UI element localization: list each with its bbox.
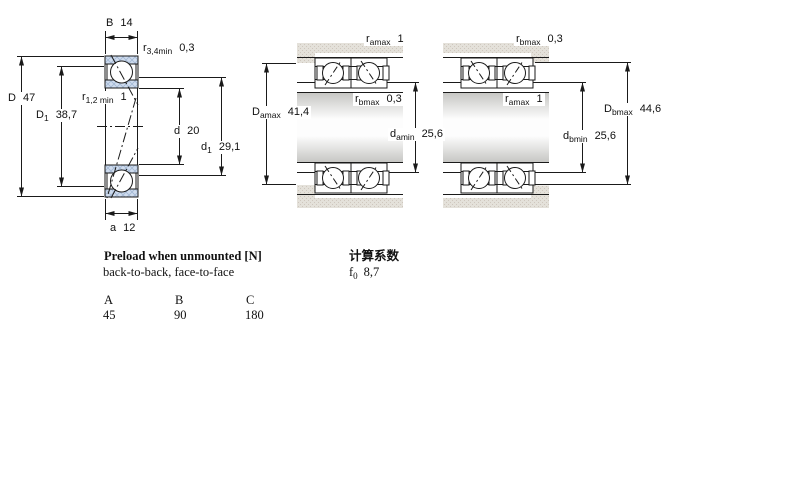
dim-value: 1 [536, 93, 542, 105]
dim-label-D-bmax: Dbmax44,6 [602, 103, 663, 116]
factor-subscript: 0 [353, 271, 358, 281]
dim-label-d-bmin: dbmin25,6 [561, 130, 618, 143]
dim-label-r-bmax-ftf: rbmax0,3 [514, 33, 565, 46]
calculation-factors-title: 计算系数 [349, 249, 399, 263]
bearing-outer-section-bottom [105, 165, 138, 197]
dim-subscript: 3,4min [147, 46, 173, 56]
ball [111, 61, 133, 83]
preload-value-a: 45 [103, 308, 116, 322]
dim-label-D1: D138,7 [34, 109, 79, 122]
dim-label-r-amax-ftf: ramax1 [503, 93, 545, 106]
bearing-outer-section-top [105, 56, 138, 88]
dim-value: 25,6 [595, 130, 616, 142]
dim-value: 12 [123, 222, 135, 234]
dim-symbol: a [110, 222, 116, 234]
dim-subscript: bmax [612, 107, 633, 117]
ball [505, 63, 526, 84]
dim-symbol: D [604, 103, 612, 115]
dim-subscript: amin [396, 132, 414, 142]
bearing-pair-top [315, 58, 389, 88]
ball [359, 63, 380, 84]
ball [469, 63, 490, 84]
preload-col-header-c: C [246, 293, 254, 307]
dim-symbol: D [8, 92, 16, 104]
dim-subscript: 1 [207, 145, 212, 155]
dim-label-a: a12 [108, 222, 137, 235]
dim-label-d1: d129,1 [199, 141, 242, 154]
dim-value: 14 [120, 17, 132, 29]
face-to-face-diagram [443, 43, 631, 208]
dim-value: 47 [23, 92, 35, 104]
ball [323, 63, 344, 84]
preload-col-header-b: B [175, 293, 183, 307]
bearing-pair-bottom [315, 163, 389, 193]
dim-symbol: d [174, 125, 180, 137]
dim-value: 25,6 [422, 128, 443, 140]
ball [505, 168, 526, 189]
dim-label-r-amax-btb: ramax1 [364, 33, 406, 46]
dim-value: 0,3 [179, 42, 194, 54]
calculation-factor-f0: f08,7 [349, 265, 379, 280]
dim-label-r-bmax-btb: rbmax0,3 [353, 93, 404, 106]
dim-value: 0,3 [386, 93, 401, 105]
dim-subscript: amax [260, 110, 281, 120]
dim-label-D-amax: Damax41,4 [250, 106, 311, 119]
dim-label-d-amin: damin25,6 [388, 128, 445, 141]
dim-value: 44,6 [640, 103, 661, 115]
dim-label-D: D47 [6, 92, 37, 105]
dim-subscript: amax [509, 97, 530, 107]
bearing-spec-page: B14 r3,4min0,3 D47 D138,7 r1,2 min1 d20 … [0, 0, 800, 500]
dim-subscript: bmax [520, 37, 541, 47]
factor-value: 8,7 [364, 265, 380, 279]
dim-value: 38,7 [56, 109, 77, 121]
dim-symbol: B [106, 17, 113, 29]
ball [469, 168, 490, 189]
dim-value: 1 [397, 33, 403, 45]
dim-value: 1 [121, 91, 127, 103]
dim-symbol: D [252, 106, 260, 118]
preload-col-header-a: A [104, 293, 113, 307]
dim-value: 0,3 [547, 33, 562, 45]
dim-subscript: amax [370, 37, 391, 47]
dim-value: 20 [187, 125, 199, 137]
preload-value-c: 180 [245, 308, 264, 322]
dim-subscript: 1,2 min [86, 95, 114, 105]
dim-symbol: D [36, 109, 44, 121]
bearing-pair-bottom [461, 163, 535, 193]
dim-label-r34: r3,4min0,3 [141, 42, 196, 55]
preload-title: Preload when unmounted [N] [104, 249, 262, 263]
preload-value-b: 90 [174, 308, 187, 322]
back-to-back-diagram [262, 43, 419, 208]
dim-subscript: bmin [569, 134, 587, 144]
bearing-pair-top [461, 58, 535, 88]
dim-label-B: B14 [104, 17, 135, 30]
dim-label-d: d20 [172, 125, 201, 138]
ball [359, 168, 380, 189]
dim-value: 41,4 [288, 106, 309, 118]
dim-subscript: bmax [359, 97, 380, 107]
preload-subtitle: back-to-back, face-to-face [103, 265, 234, 279]
dim-label-r12: r1,2 min1 [80, 91, 129, 104]
dim-value: 29,1 [219, 141, 240, 153]
dim-subscript: 1 [44, 113, 49, 123]
ball [323, 168, 344, 189]
